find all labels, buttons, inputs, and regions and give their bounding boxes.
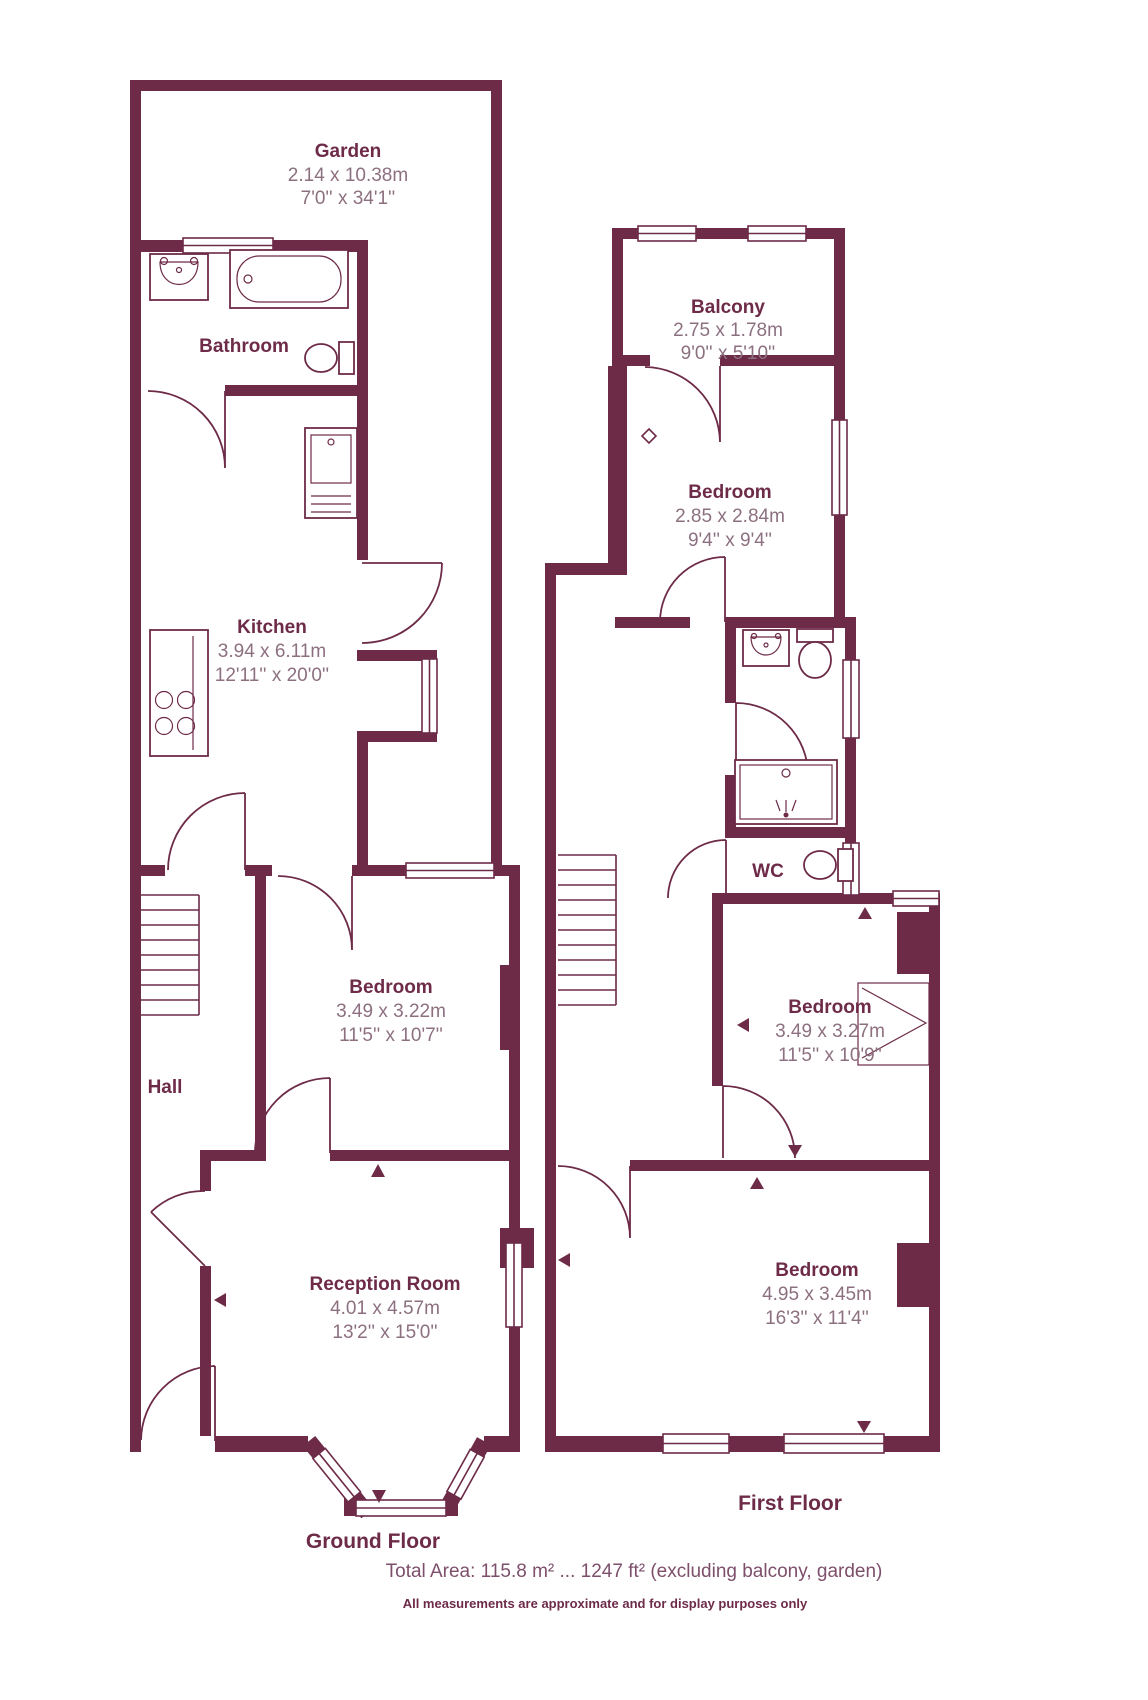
first-floor-walls: [545, 228, 940, 1452]
balcony-imperial: 9'0'' x 5'10'': [681, 343, 776, 364]
shower-icon: [735, 760, 837, 824]
first-floor-title: First Floor: [738, 1492, 842, 1515]
kitchen-sink-icon: [305, 428, 357, 518]
total-area-text: Total Area: 115.8 m² ... 1247 ft² (exclu…: [386, 1561, 883, 1582]
ff-bedroom-front-label: Bedroom: [775, 1260, 858, 1281]
hall-label: Hall: [148, 1077, 183, 1098]
shower-room-toilet-icon: [797, 629, 833, 678]
gf-bedroom-metric: 3.49 x 3.22m: [336, 1001, 446, 1022]
ff-bedroom-rear-metric: 2.85 x 2.84m: [675, 506, 785, 527]
ground-floor-windows: [183, 238, 522, 1327]
kitchen-metric: 3.94 x 6.11m: [218, 641, 326, 662]
kitchen-label: Kitchen: [237, 617, 307, 638]
ff-bedroom-mid-metric: 3.49 x 3.27m: [775, 1021, 885, 1042]
shower-room-sink-icon: [743, 630, 789, 666]
gf-bedroom-imperial: 11'5'' x 10'7'': [339, 1025, 443, 1046]
ground-floor-title: Ground Floor: [306, 1530, 440, 1553]
bathtub-icon: [230, 250, 348, 308]
first-floor-plan: Balcony 2.75 x 1.78m 9'0'' x 5'10'' Bedr…: [545, 226, 940, 1515]
disclaimer-text: All measurements are approximate and for…: [403, 1596, 808, 1611]
ff-bedroom-mid-imperial: 11'5'' x 10'9'': [778, 1045, 882, 1066]
balcony-metric: 2.75 x 1.78m: [673, 320, 783, 341]
wc-label: WC: [752, 861, 784, 882]
garden-imperial: 7'0'' x 34'1'': [301, 188, 396, 209]
ground-floor-plan: Garden 2.14 x 10.38m 7'0'' x 34'1'' Bath…: [130, 80, 534, 1553]
ff-bedroom-front-imperial: 16'3'' x 11'4'': [765, 1308, 869, 1329]
gf-bedroom-label: Bedroom: [349, 977, 432, 998]
stove-icon: [150, 630, 208, 756]
bathroom-sink-icon: [150, 254, 208, 300]
ff-bedroom-rear-imperial: 9'4'' x 9'4'': [688, 530, 772, 551]
reception-bay-window: [303, 1436, 491, 1518]
balcony-label: Balcony: [691, 297, 765, 318]
ff-bedroom-mid-label: Bedroom: [788, 997, 871, 1018]
garden-metric: 2.14 x 10.38m: [288, 165, 408, 186]
reception-imperial: 13'2'' x 15'0'': [332, 1322, 437, 1343]
wc-toilet-icon: [804, 849, 853, 881]
ff-bedroom-front-metric: 4.95 x 3.45m: [762, 1284, 872, 1305]
garden-label: Garden: [315, 141, 382, 162]
floor-plan-drawing: Garden 2.14 x 10.38m 7'0'' x 34'1'' Bath…: [0, 0, 1148, 1700]
bathroom-label: Bathroom: [199, 336, 289, 357]
ff-bedroom-rear-label: Bedroom: [688, 482, 771, 503]
staircase: [141, 895, 199, 1015]
staircase-first-floor: [558, 855, 616, 1005]
kitchen-imperial: 12'11'' x 20'0'': [215, 665, 329, 686]
floor-plan-page: Garden 2.14 x 10.38m 7'0'' x 34'1'' Bath…: [0, 0, 1148, 1700]
bathroom-toilet-icon: [305, 342, 354, 374]
reception-metric: 4.01 x 4.57m: [330, 1298, 440, 1319]
reception-label: Reception Room: [310, 1274, 461, 1295]
